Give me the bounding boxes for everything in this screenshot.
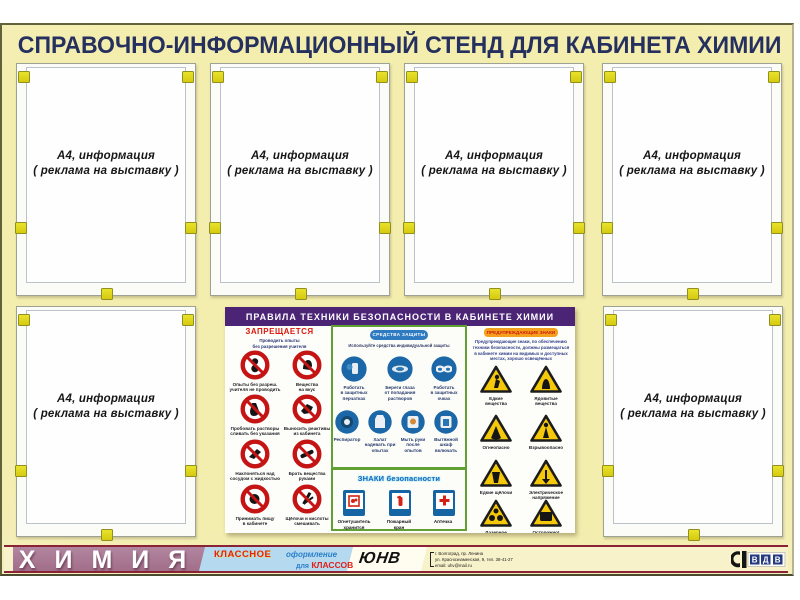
svg-text:В: В [752, 556, 758, 565]
svg-text:Д: Д [763, 556, 769, 565]
svg-text:В: В [775, 556, 781, 565]
